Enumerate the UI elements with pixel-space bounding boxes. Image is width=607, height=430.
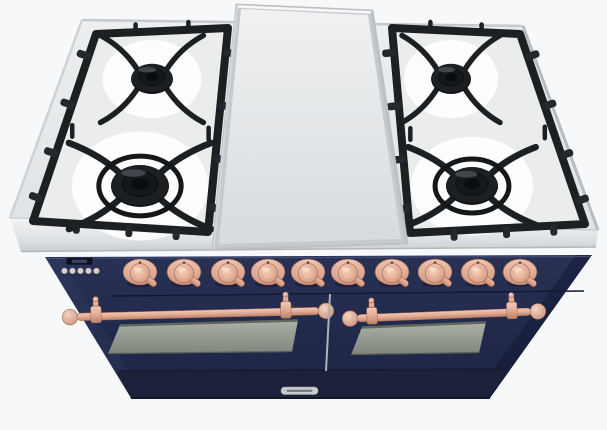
burner-knob-2 <box>167 259 201 288</box>
panel-button-1 <box>61 268 67 274</box>
panel-button-3 <box>77 268 83 274</box>
burner-knob-6 <box>331 259 365 288</box>
grate-prong <box>186 20 191 33</box>
burner-cap-center <box>445 73 457 81</box>
handle-finial-ball <box>530 303 546 319</box>
burner-knob-5 <box>291 259 325 288</box>
handle-finial-ball <box>62 309 78 325</box>
range-render <box>0 0 607 430</box>
burner-knob-9 <box>461 259 495 288</box>
burner-cap-center <box>131 178 148 190</box>
grate-finger <box>503 226 511 238</box>
burner-knob-4 <box>251 259 285 288</box>
cap-highlight <box>139 67 157 72</box>
cap-highlight <box>455 171 477 178</box>
grate-prong <box>543 124 548 140</box>
grate-prong <box>408 126 413 142</box>
burner-cap-center <box>146 73 159 81</box>
panel-button-2 <box>69 268 75 274</box>
badge-text-smudge <box>287 390 313 392</box>
burner-knob-10 <box>503 259 537 288</box>
grate-prong <box>428 20 433 33</box>
handle-finial-ball <box>342 311 358 327</box>
burner-knob-7 <box>375 259 409 288</box>
cap-highlight <box>438 67 455 72</box>
cap-highlight <box>121 169 145 177</box>
burner-knob-3 <box>211 259 245 288</box>
display-buttons <box>61 268 99 276</box>
product-render <box>0 0 607 430</box>
panel-button-5 <box>93 268 99 274</box>
grate-finger <box>387 102 402 111</box>
grate-finger <box>172 228 180 240</box>
display-glow <box>72 260 87 263</box>
burner-cap-center <box>464 179 480 190</box>
grate-prong <box>206 125 211 141</box>
grate-finger <box>125 225 133 237</box>
grate-finger <box>450 229 458 241</box>
cooktop <box>10 4 598 252</box>
grate-finger <box>550 223 558 235</box>
grate-prong <box>133 22 138 35</box>
grate-prong <box>70 123 75 139</box>
grate-prong <box>479 22 484 35</box>
panel-button-4 <box>85 268 91 274</box>
burner-knob-1 <box>123 259 157 288</box>
handle-finial-ball <box>318 303 334 319</box>
brand-badge <box>281 387 318 395</box>
oven-clock-display <box>66 258 93 266</box>
burner-knob-8 <box>418 259 452 288</box>
grate-finger <box>382 49 397 58</box>
